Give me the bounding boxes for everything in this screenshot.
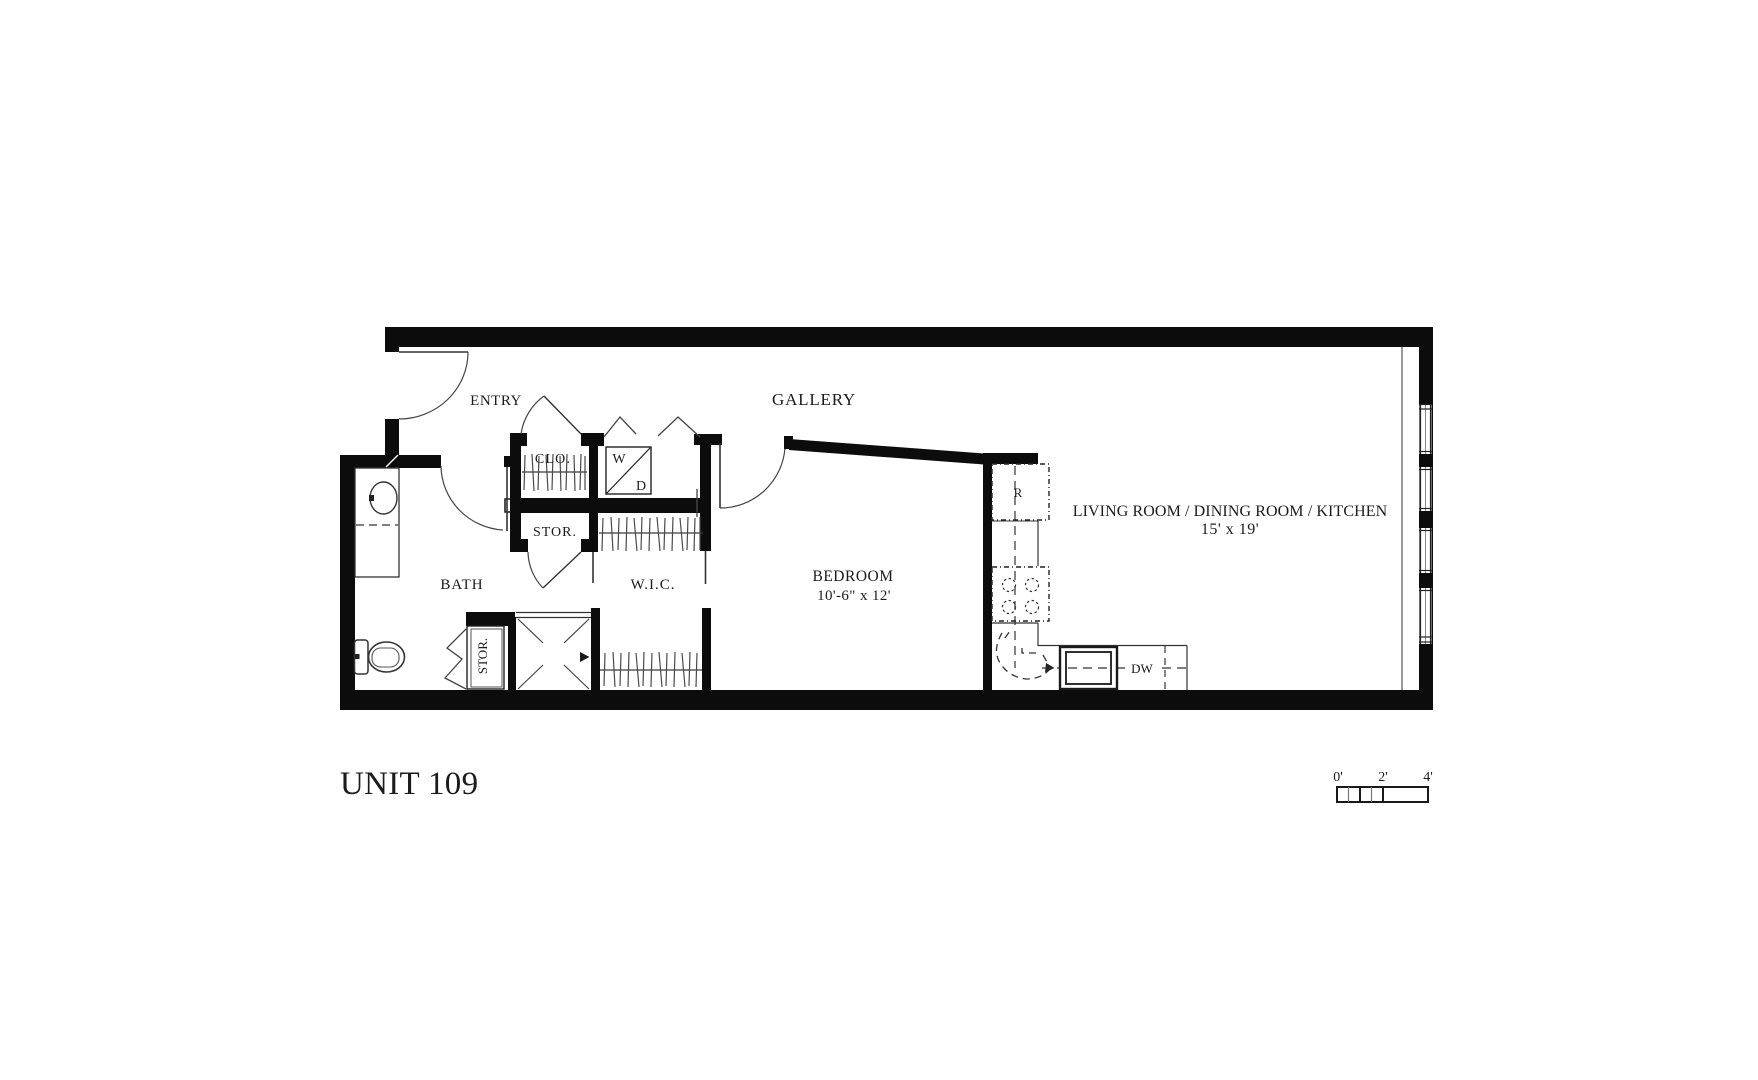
svg-text:0': 0' [1333, 770, 1343, 785]
svg-text:4': 4' [1423, 770, 1433, 785]
svg-text:LIVING ROOM / DINING ROOM / KI: LIVING ROOM / DINING ROOM / KITCHEN [1073, 503, 1388, 520]
svg-text:ENTRY: ENTRY [470, 393, 522, 409]
svg-text:STOR.: STOR. [475, 638, 490, 674]
svg-text:2': 2' [1378, 770, 1388, 785]
svg-text:W: W [612, 452, 626, 467]
svg-text:R: R [1014, 485, 1023, 500]
svg-text:STOR.: STOR. [533, 525, 577, 540]
svg-text:D: D [636, 479, 646, 494]
svg-text:15' x 19': 15' x 19' [1201, 521, 1259, 538]
svg-text:W.I.C.: W.I.C. [630, 577, 675, 593]
svg-text:CLO.: CLO. [535, 452, 571, 467]
svg-text:BEDROOM: BEDROOM [812, 568, 893, 585]
svg-text:GALLERY: GALLERY [772, 390, 856, 409]
svg-text:BATH: BATH [440, 577, 483, 593]
svg-text:10'-6" x 12': 10'-6" x 12' [817, 588, 891, 604]
svg-text:DW: DW [1131, 661, 1153, 676]
svg-text:UNIT 109: UNIT 109 [340, 766, 478, 802]
